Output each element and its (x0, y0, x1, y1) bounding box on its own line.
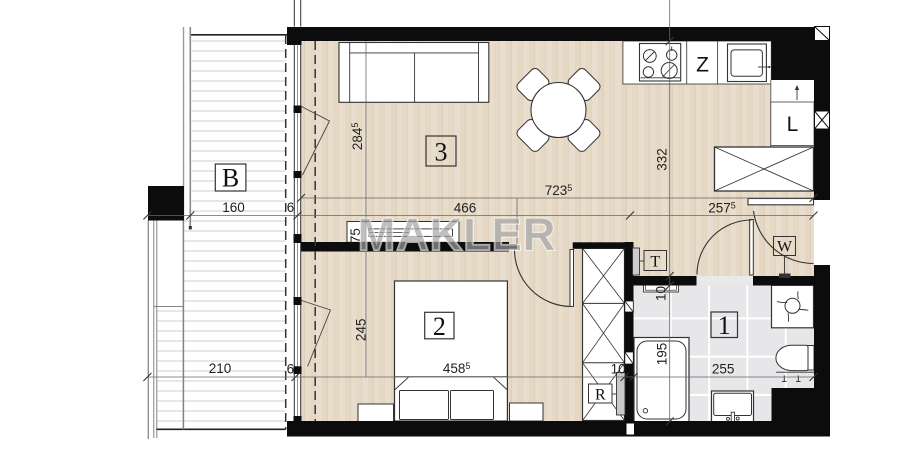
svg-text:195: 195 (655, 343, 670, 366)
svg-text:L: L (787, 113, 799, 136)
svg-text:245: 245 (353, 319, 368, 342)
svg-text:210: 210 (209, 361, 232, 376)
svg-text:T: T (650, 254, 660, 271)
svg-text:255: 255 (712, 362, 735, 377)
svg-text:W: W (777, 239, 793, 256)
svg-text:2: 2 (433, 312, 446, 341)
svg-text:6: 6 (287, 200, 295, 215)
svg-text:1: 1 (718, 311, 731, 340)
svg-text:3: 3 (435, 138, 448, 167)
svg-text:R: R (595, 387, 606, 404)
svg-text:160: 160 (222, 200, 245, 215)
svg-text:6: 6 (287, 362, 295, 377)
svg-text:Z: Z (696, 54, 709, 77)
svg-text:10: 10 (654, 286, 669, 301)
svg-text:MAKLER: MAKLER (358, 209, 556, 260)
svg-text:332: 332 (654, 148, 669, 171)
svg-text:10: 10 (611, 362, 626, 377)
svg-text:B: B (222, 164, 239, 193)
